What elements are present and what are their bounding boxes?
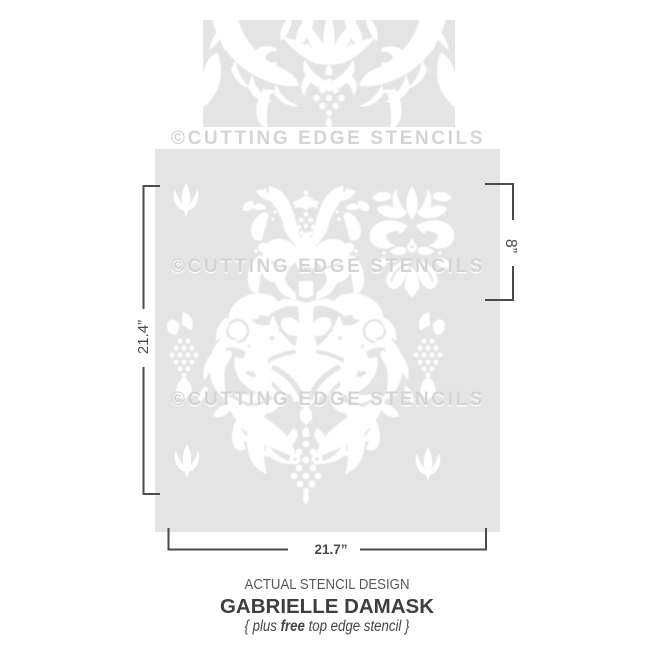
svg-text:ACTUAL STENCIL DESIGN: ACTUAL STENCIL DESIGN: [245, 576, 410, 593]
svg-text:8”: 8”: [502, 239, 519, 253]
svg-text:21.7”: 21.7”: [314, 542, 347, 557]
svg-text:{ plus free top edge stencil }: { plus free top edge stencil }: [245, 618, 410, 635]
svg-text:21.4”: 21.4”: [135, 320, 152, 354]
svg-text:GABRIELLE DAMASK: GABRIELLE DAMASK: [220, 595, 434, 618]
